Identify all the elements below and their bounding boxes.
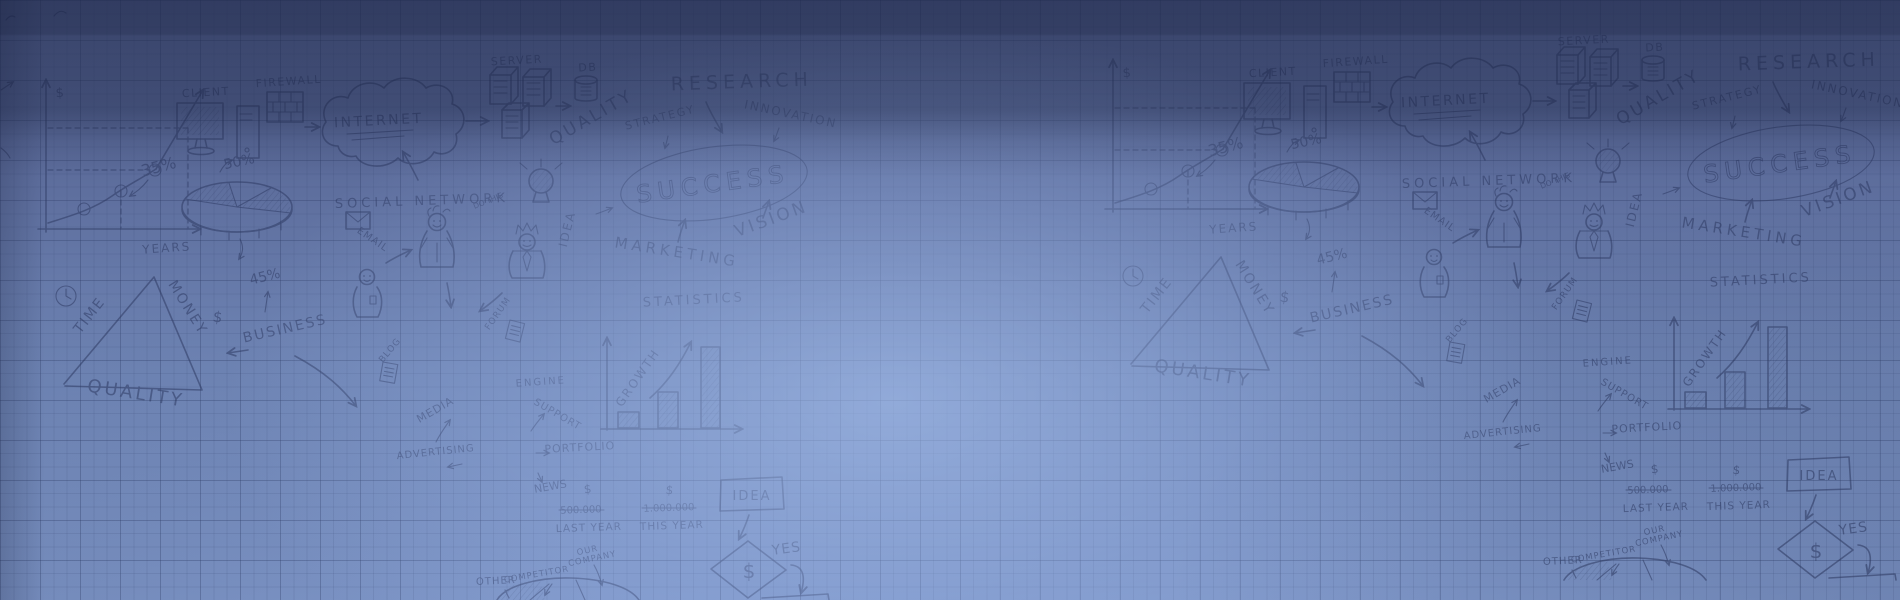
doodle-tile-right	[1105, 33, 1900, 580]
edge-marks	[1, 11, 66, 158]
doodle-tile-left	[38, 53, 839, 600]
banner-background: $ YEARS 35% 50	[0, 0, 1900, 600]
doodle-layer: $ YEARS 35% 50	[0, 0, 1900, 600]
